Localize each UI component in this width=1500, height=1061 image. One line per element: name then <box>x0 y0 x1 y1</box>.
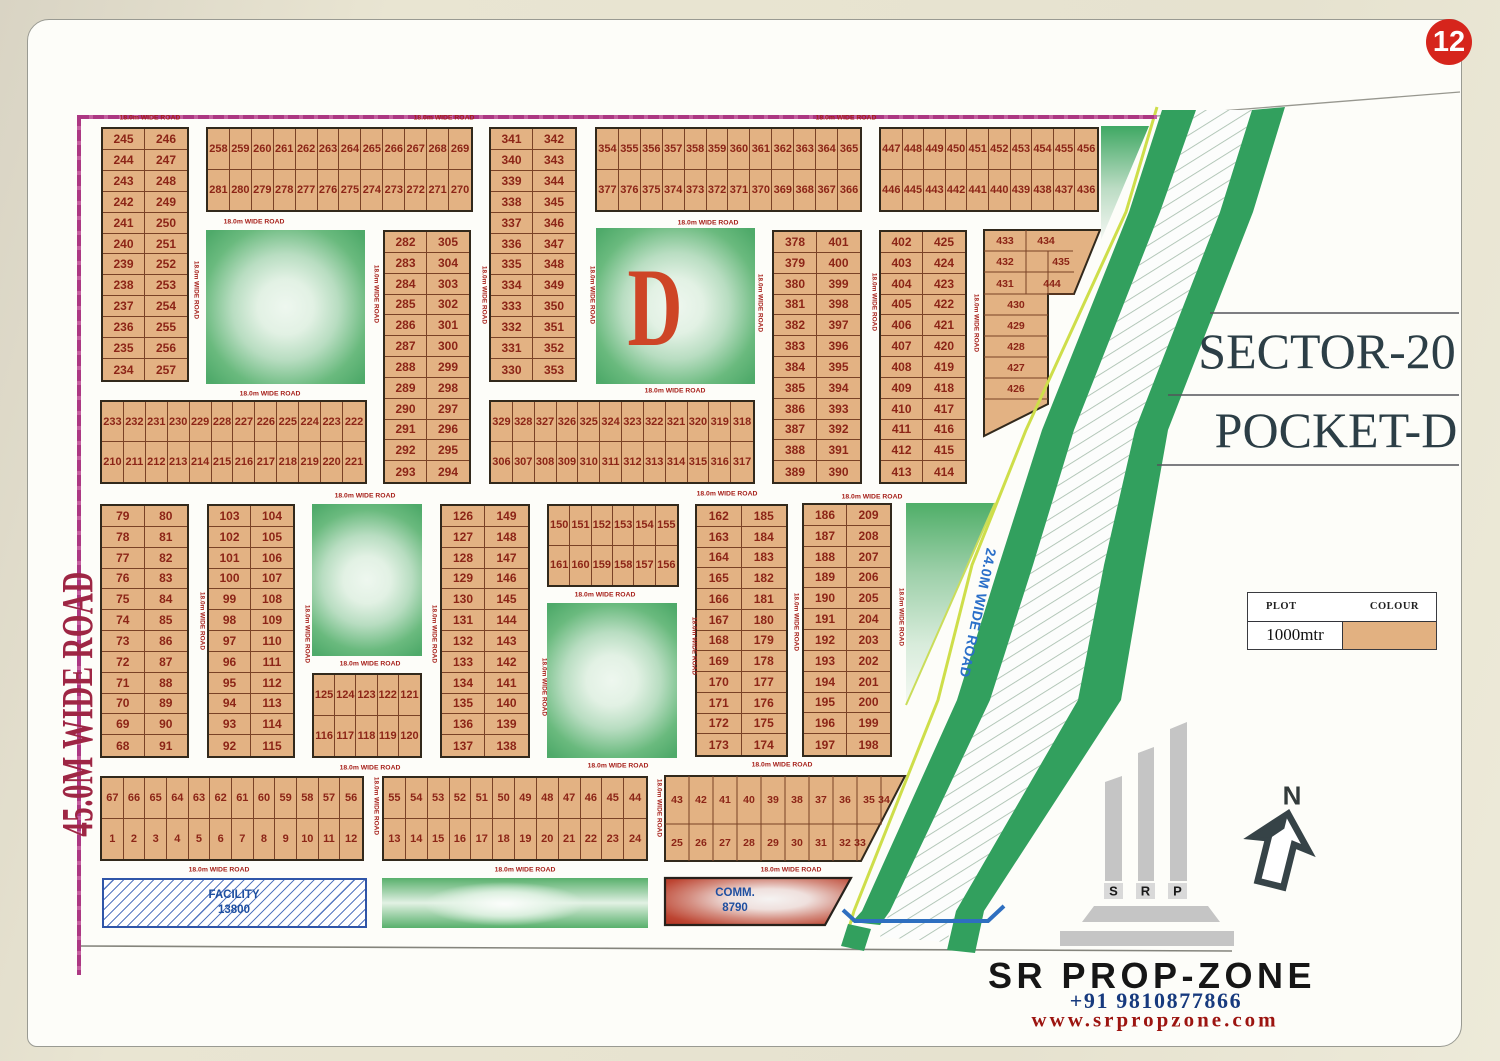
svg-text:P: P <box>1173 884 1182 899</box>
svg-text:S: S <box>1109 884 1118 899</box>
svg-text:R: R <box>1141 884 1151 899</box>
